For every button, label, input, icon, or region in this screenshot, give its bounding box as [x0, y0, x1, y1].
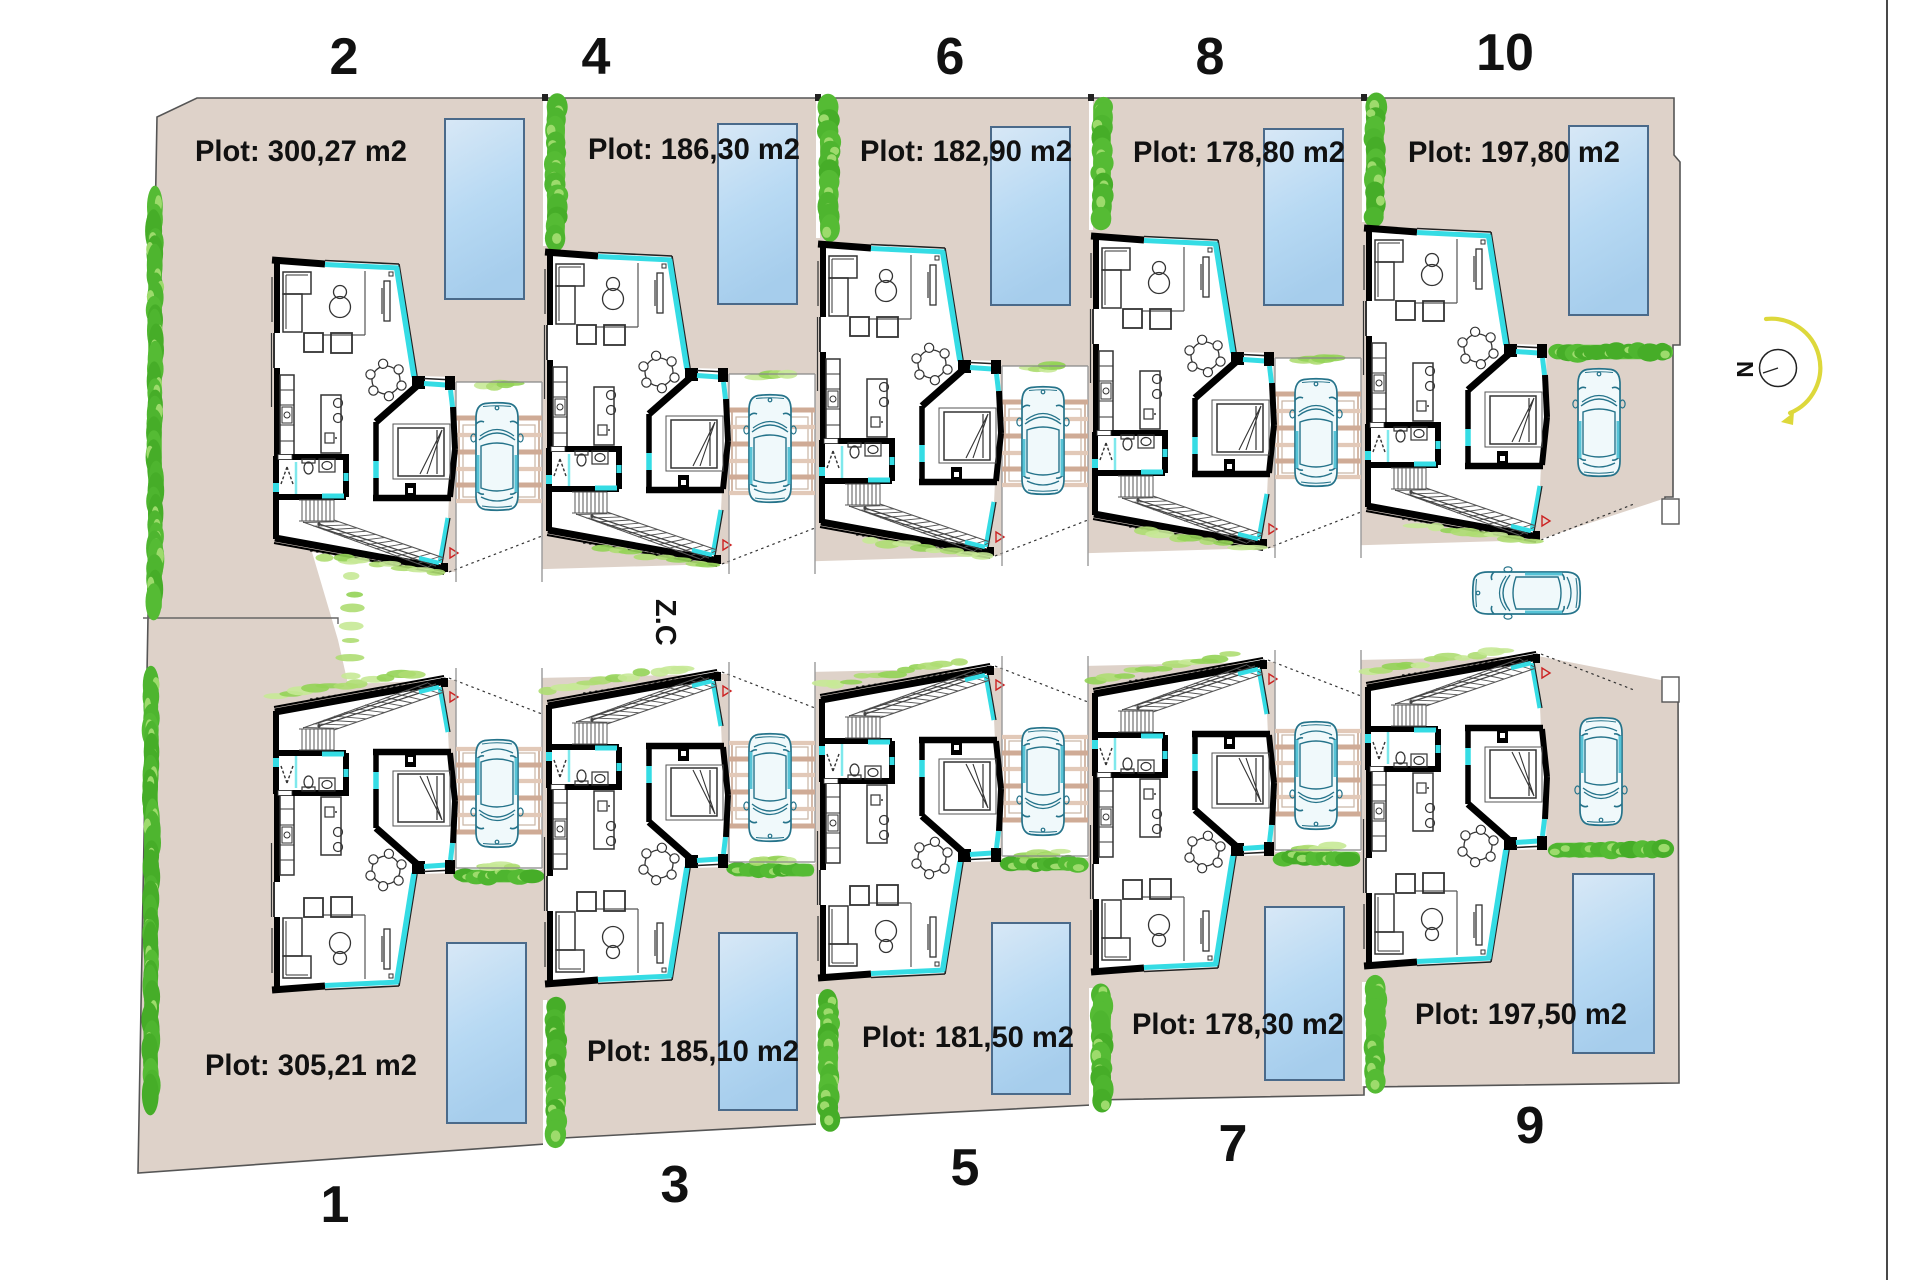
svg-text:8: 8 [1196, 28, 1225, 86]
svg-text:1: 1 [321, 1176, 350, 1234]
svg-text:6: 6 [936, 28, 965, 86]
svg-text:Plot: 178,30 m2: Plot: 178,30 m2 [1132, 1008, 1344, 1041]
svg-text:2: 2 [330, 28, 359, 86]
svg-text:4: 4 [582, 28, 611, 86]
svg-text:7: 7 [1219, 1115, 1248, 1173]
svg-text:Plot: 305,21 m2: Plot: 305,21 m2 [205, 1049, 417, 1082]
svg-text:Z.C: Z.C [649, 599, 681, 646]
svg-text:Plot: 197,50 m2: Plot: 197,50 m2 [1415, 998, 1627, 1031]
svg-text:Plot: 197,80 m2: Plot: 197,80 m2 [1408, 136, 1620, 169]
svg-text:Plot: 182,90 m2: Plot: 182,90 m2 [860, 135, 1072, 168]
svg-text:Plot: 181,50 m2: Plot: 181,50 m2 [862, 1021, 1074, 1054]
svg-text:5: 5 [951, 1139, 980, 1197]
svg-text:Plot: 186,30 m2: Plot: 186,30 m2 [588, 133, 800, 166]
svg-text:Plot: 185,10 m2: Plot: 185,10 m2 [587, 1035, 799, 1068]
svg-text:9: 9 [1516, 1097, 1545, 1155]
svg-text:10: 10 [1476, 24, 1534, 82]
svg-text:3: 3 [661, 1156, 690, 1214]
svg-text:Plot: 178,80 m2: Plot: 178,80 m2 [1133, 136, 1345, 169]
svg-text:Plot: 300,27 m2: Plot: 300,27 m2 [195, 135, 407, 168]
svg-text:N: N [1732, 361, 1758, 378]
